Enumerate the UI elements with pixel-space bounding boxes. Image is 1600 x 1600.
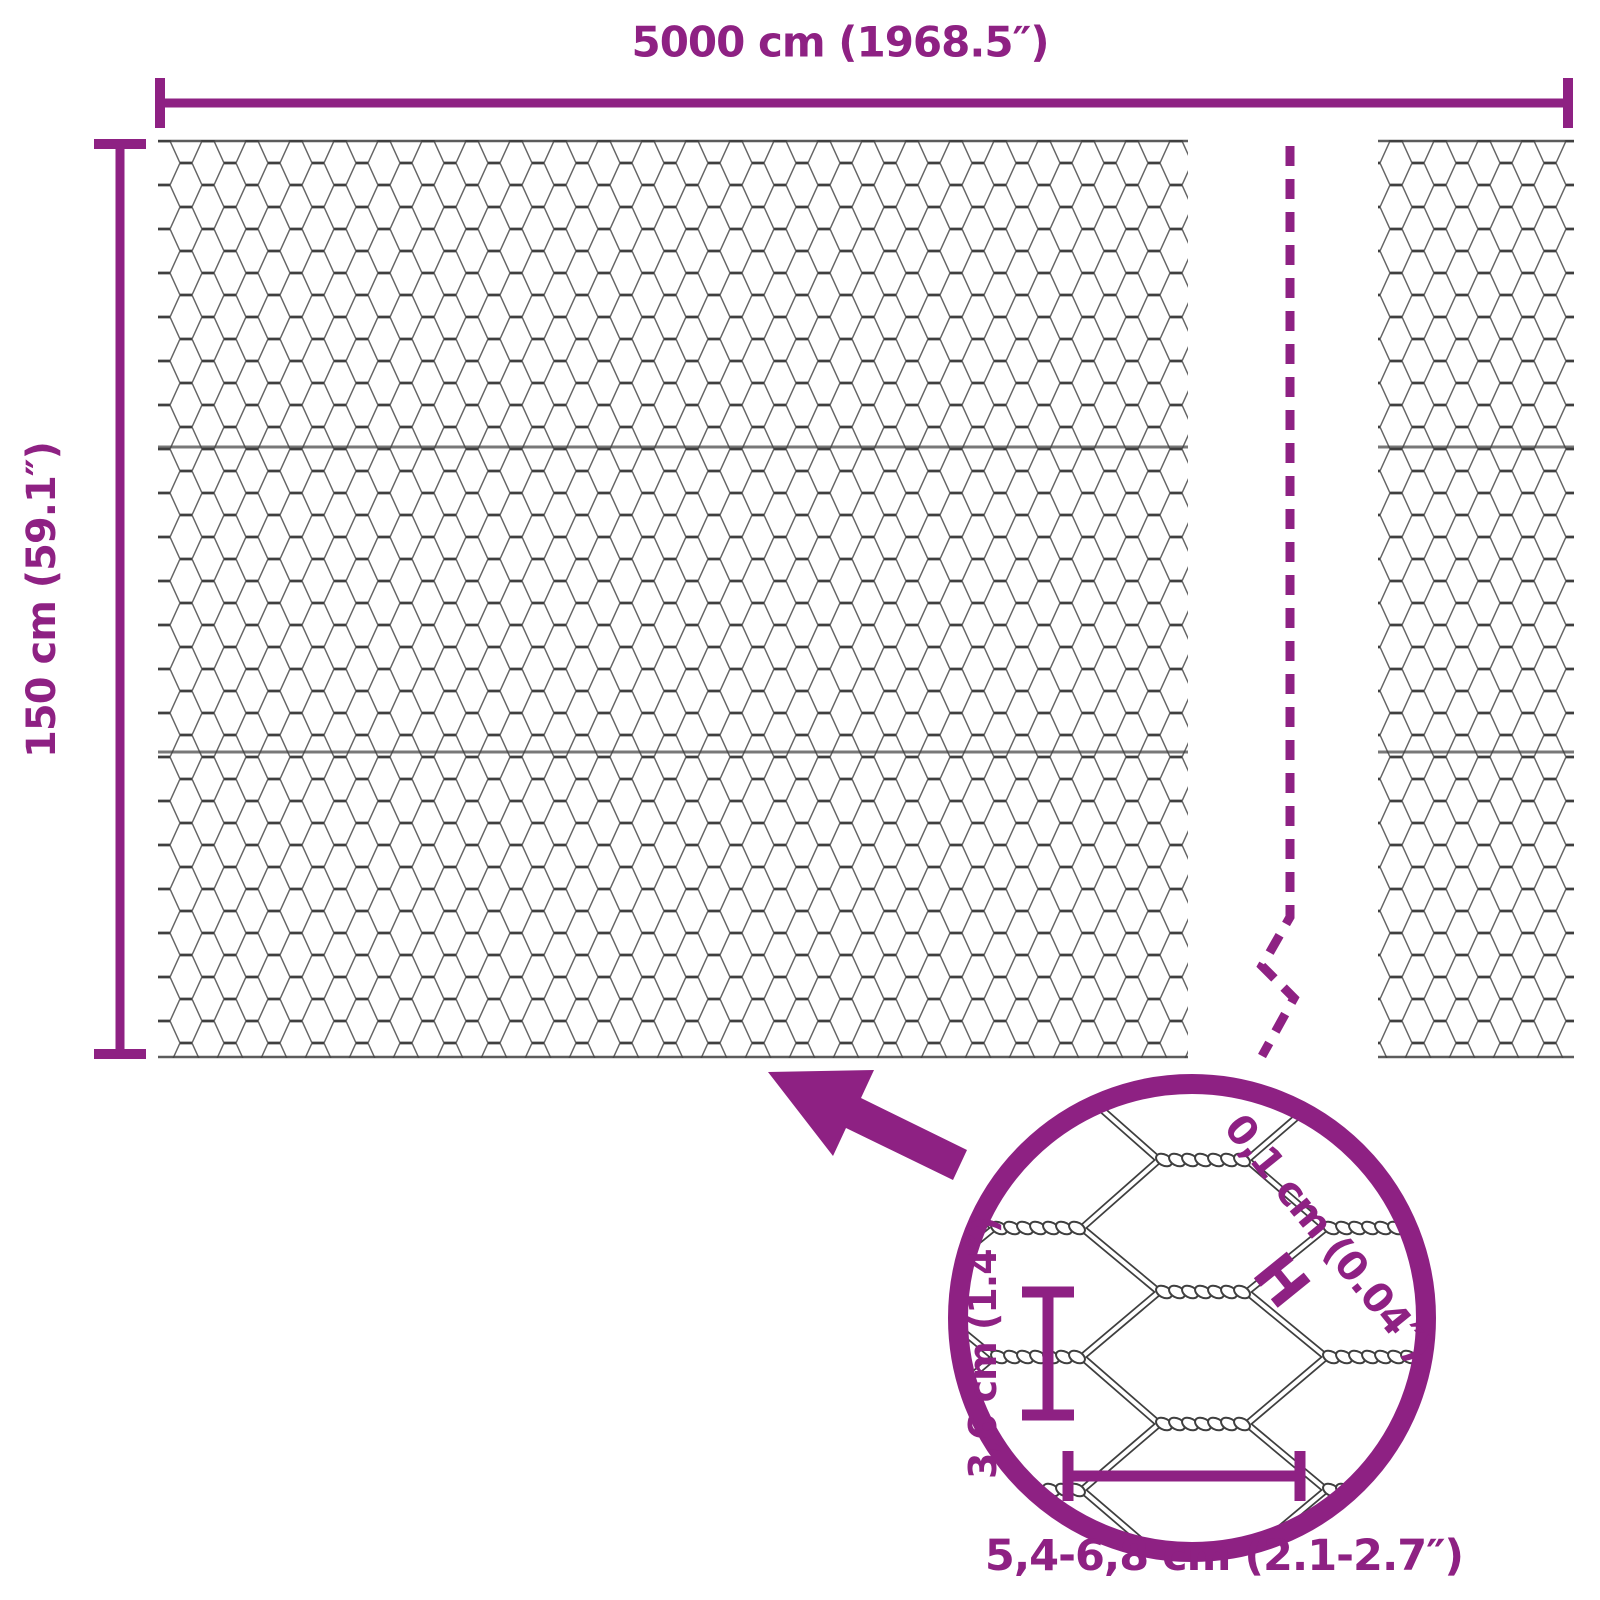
fence-mesh-right	[1378, 140, 1574, 1058]
detail-circle: 3,6 cm (1.4″) 5,4-6,8 cm (2.1-2.7″) H 0,…	[915, 1083, 1491, 1581]
continuation-dashed-line	[1262, 146, 1294, 1056]
width-dimension-line	[160, 78, 1568, 128]
height-dimension-label: 150 cm (59.1″)	[19, 442, 65, 758]
height-dimension-line	[94, 144, 146, 1054]
diagram-canvas: 5000 cm (1968.5″) 150 cm (59.1″)	[0, 0, 1600, 1600]
opening-width-label: 5,4-6,8 cm (2.1-2.7″)	[985, 1531, 1463, 1581]
opening-height-label: 3,6 cm (1.4″)	[961, 1217, 1005, 1479]
product-dimension-diagram: 5000 cm (1968.5″) 150 cm (59.1″)	[0, 0, 1600, 1600]
width-dimension-label: 5000 cm (1968.5″)	[631, 18, 1048, 67]
magnifier-arrow-icon	[768, 1070, 967, 1180]
fence-mesh-left	[158, 140, 1188, 1058]
